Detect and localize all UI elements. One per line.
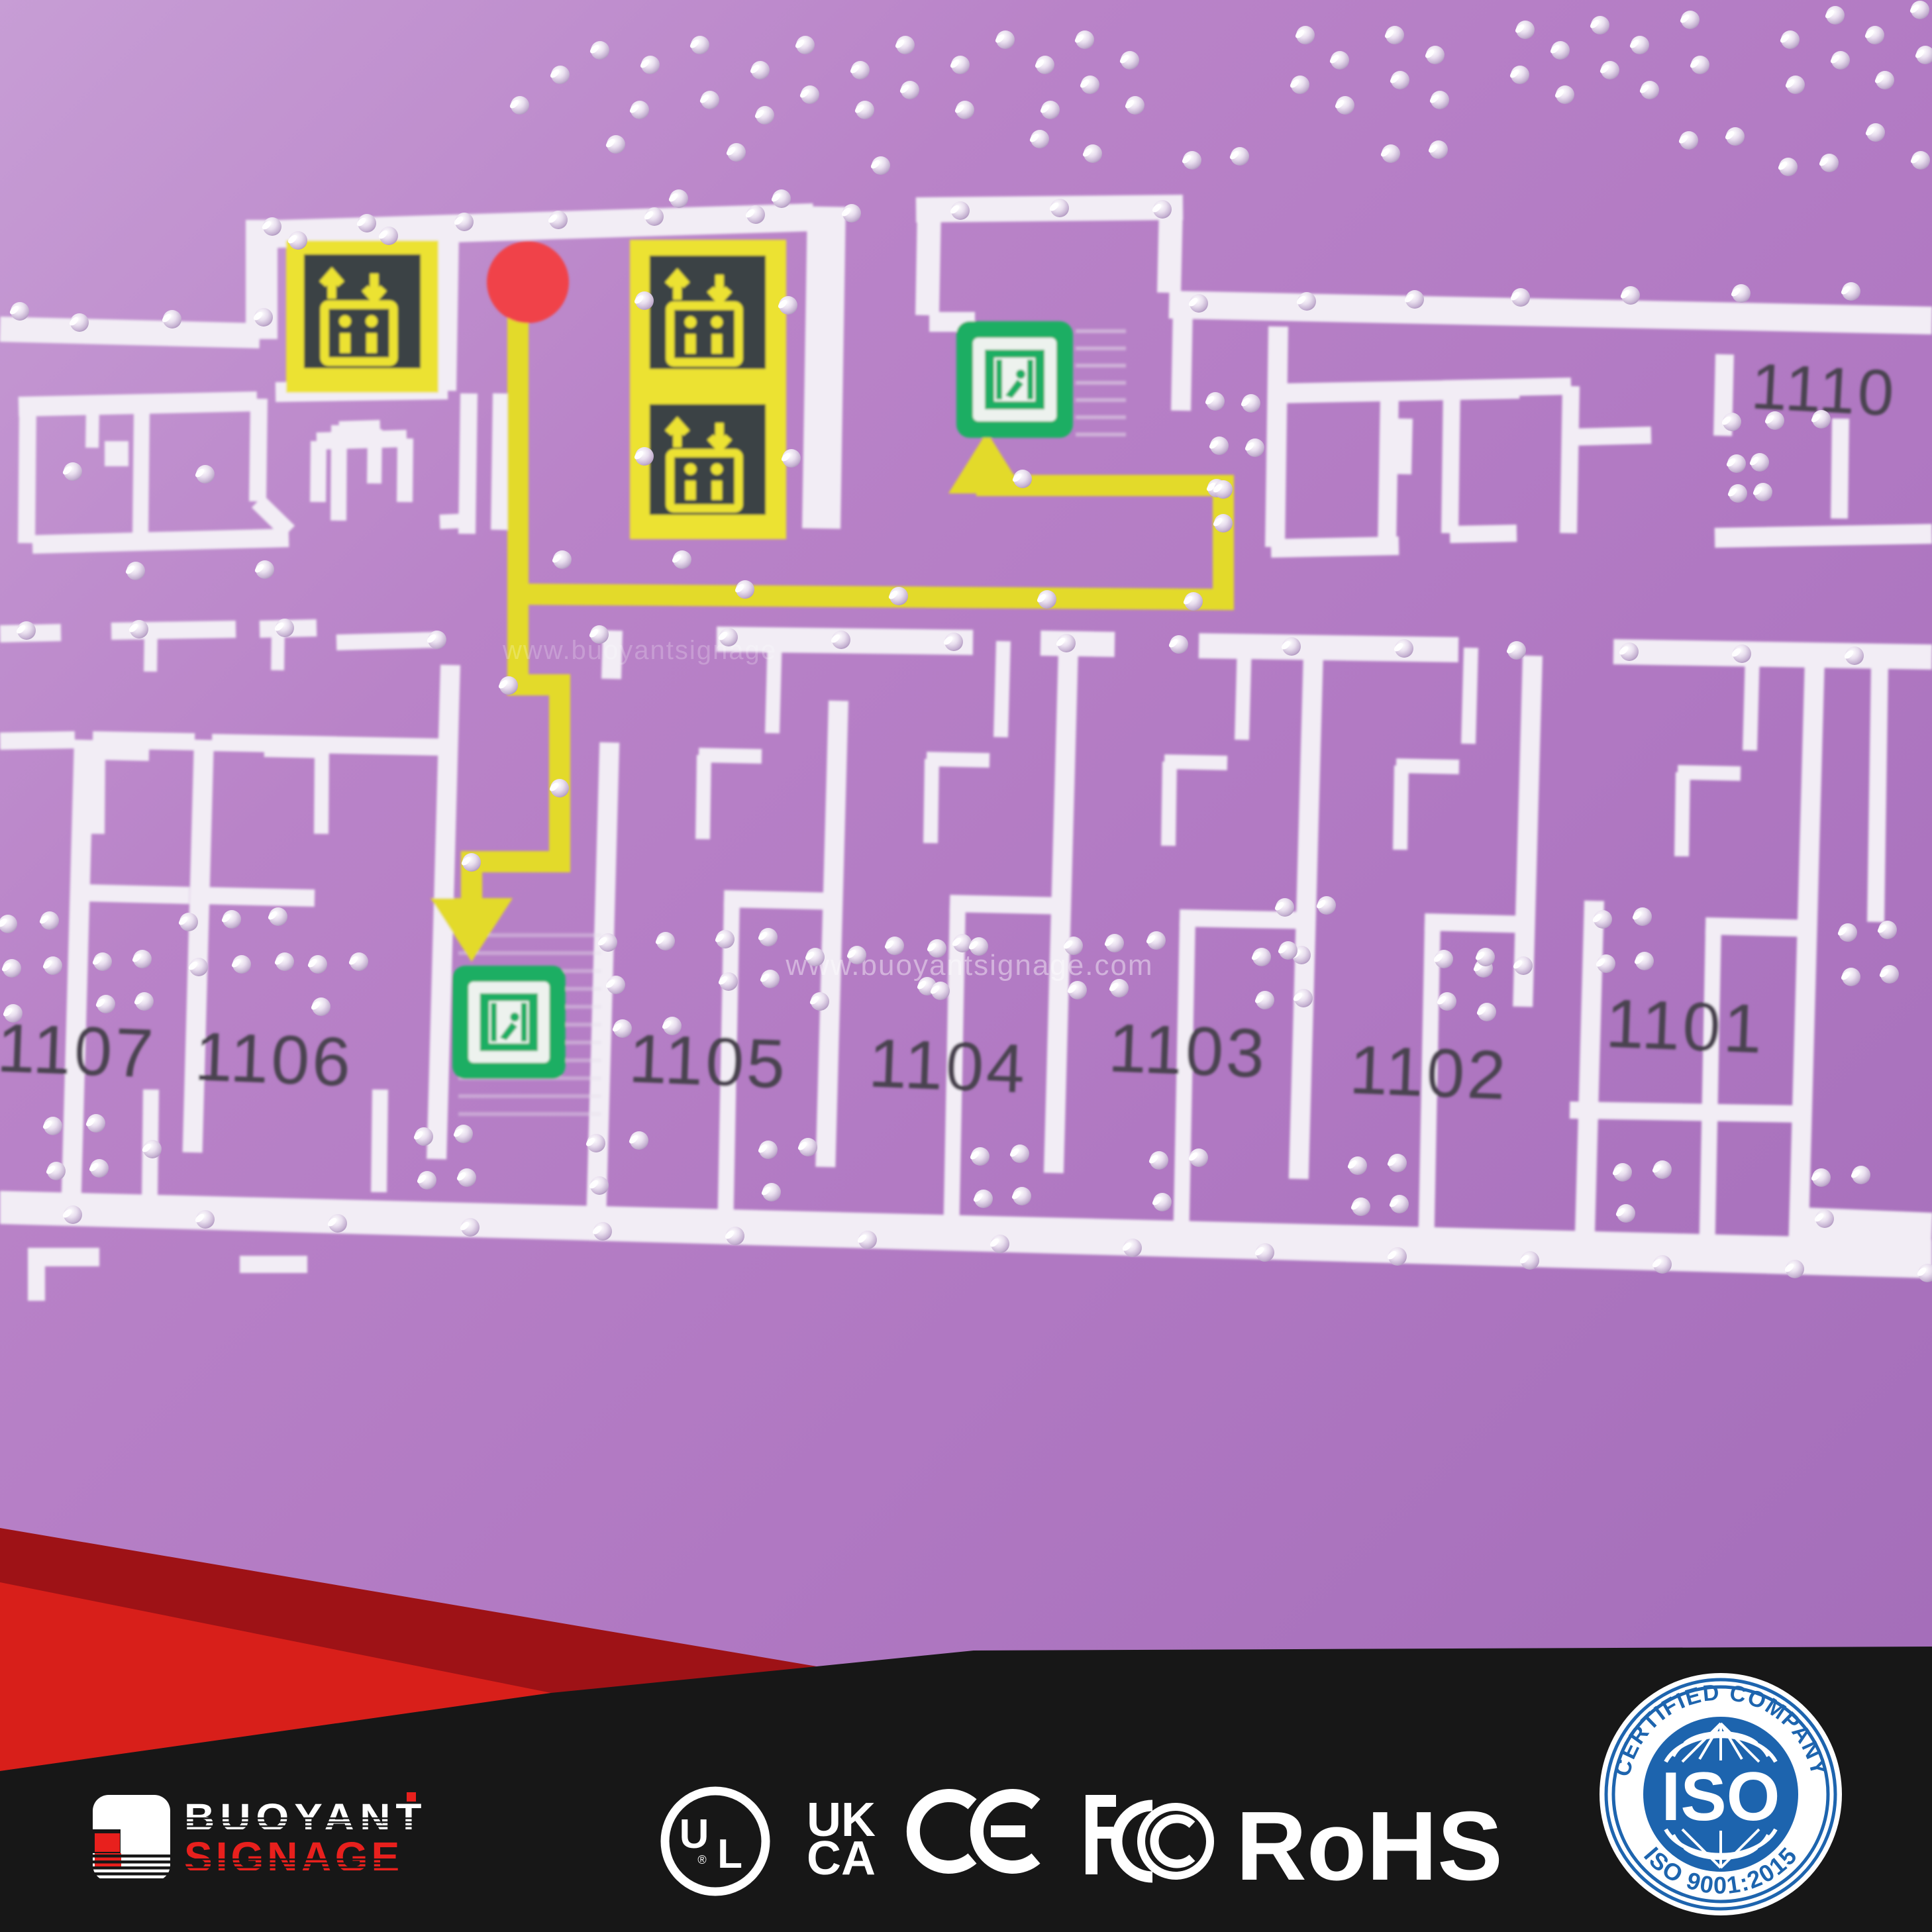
svg-text:U: U [680, 1811, 709, 1857]
svg-text:L: L [717, 1831, 742, 1877]
svg-text:1101: 1101 [1604, 985, 1766, 1068]
svg-text:®: ® [697, 1853, 706, 1866]
svg-text:RoHS: RoHS [1236, 1792, 1503, 1901]
svg-text:ISO: ISO [1661, 1758, 1780, 1835]
svg-text:SIGNAGE: SIGNAGE [184, 1833, 403, 1881]
svg-text:1104: 1104 [867, 1025, 1029, 1107]
svg-text:1103: 1103 [1107, 1009, 1268, 1092]
svg-text:1107: 1107 [0, 1009, 157, 1092]
svg-text:1105: 1105 [627, 1020, 789, 1103]
svg-text:1102: 1102 [1348, 1031, 1509, 1114]
svg-text:www.buoyantsignage.com: www.buoyantsignage.com [785, 949, 1153, 982]
svg-text:1106: 1106 [193, 1018, 354, 1101]
svg-text:CA: CA [807, 1832, 876, 1885]
